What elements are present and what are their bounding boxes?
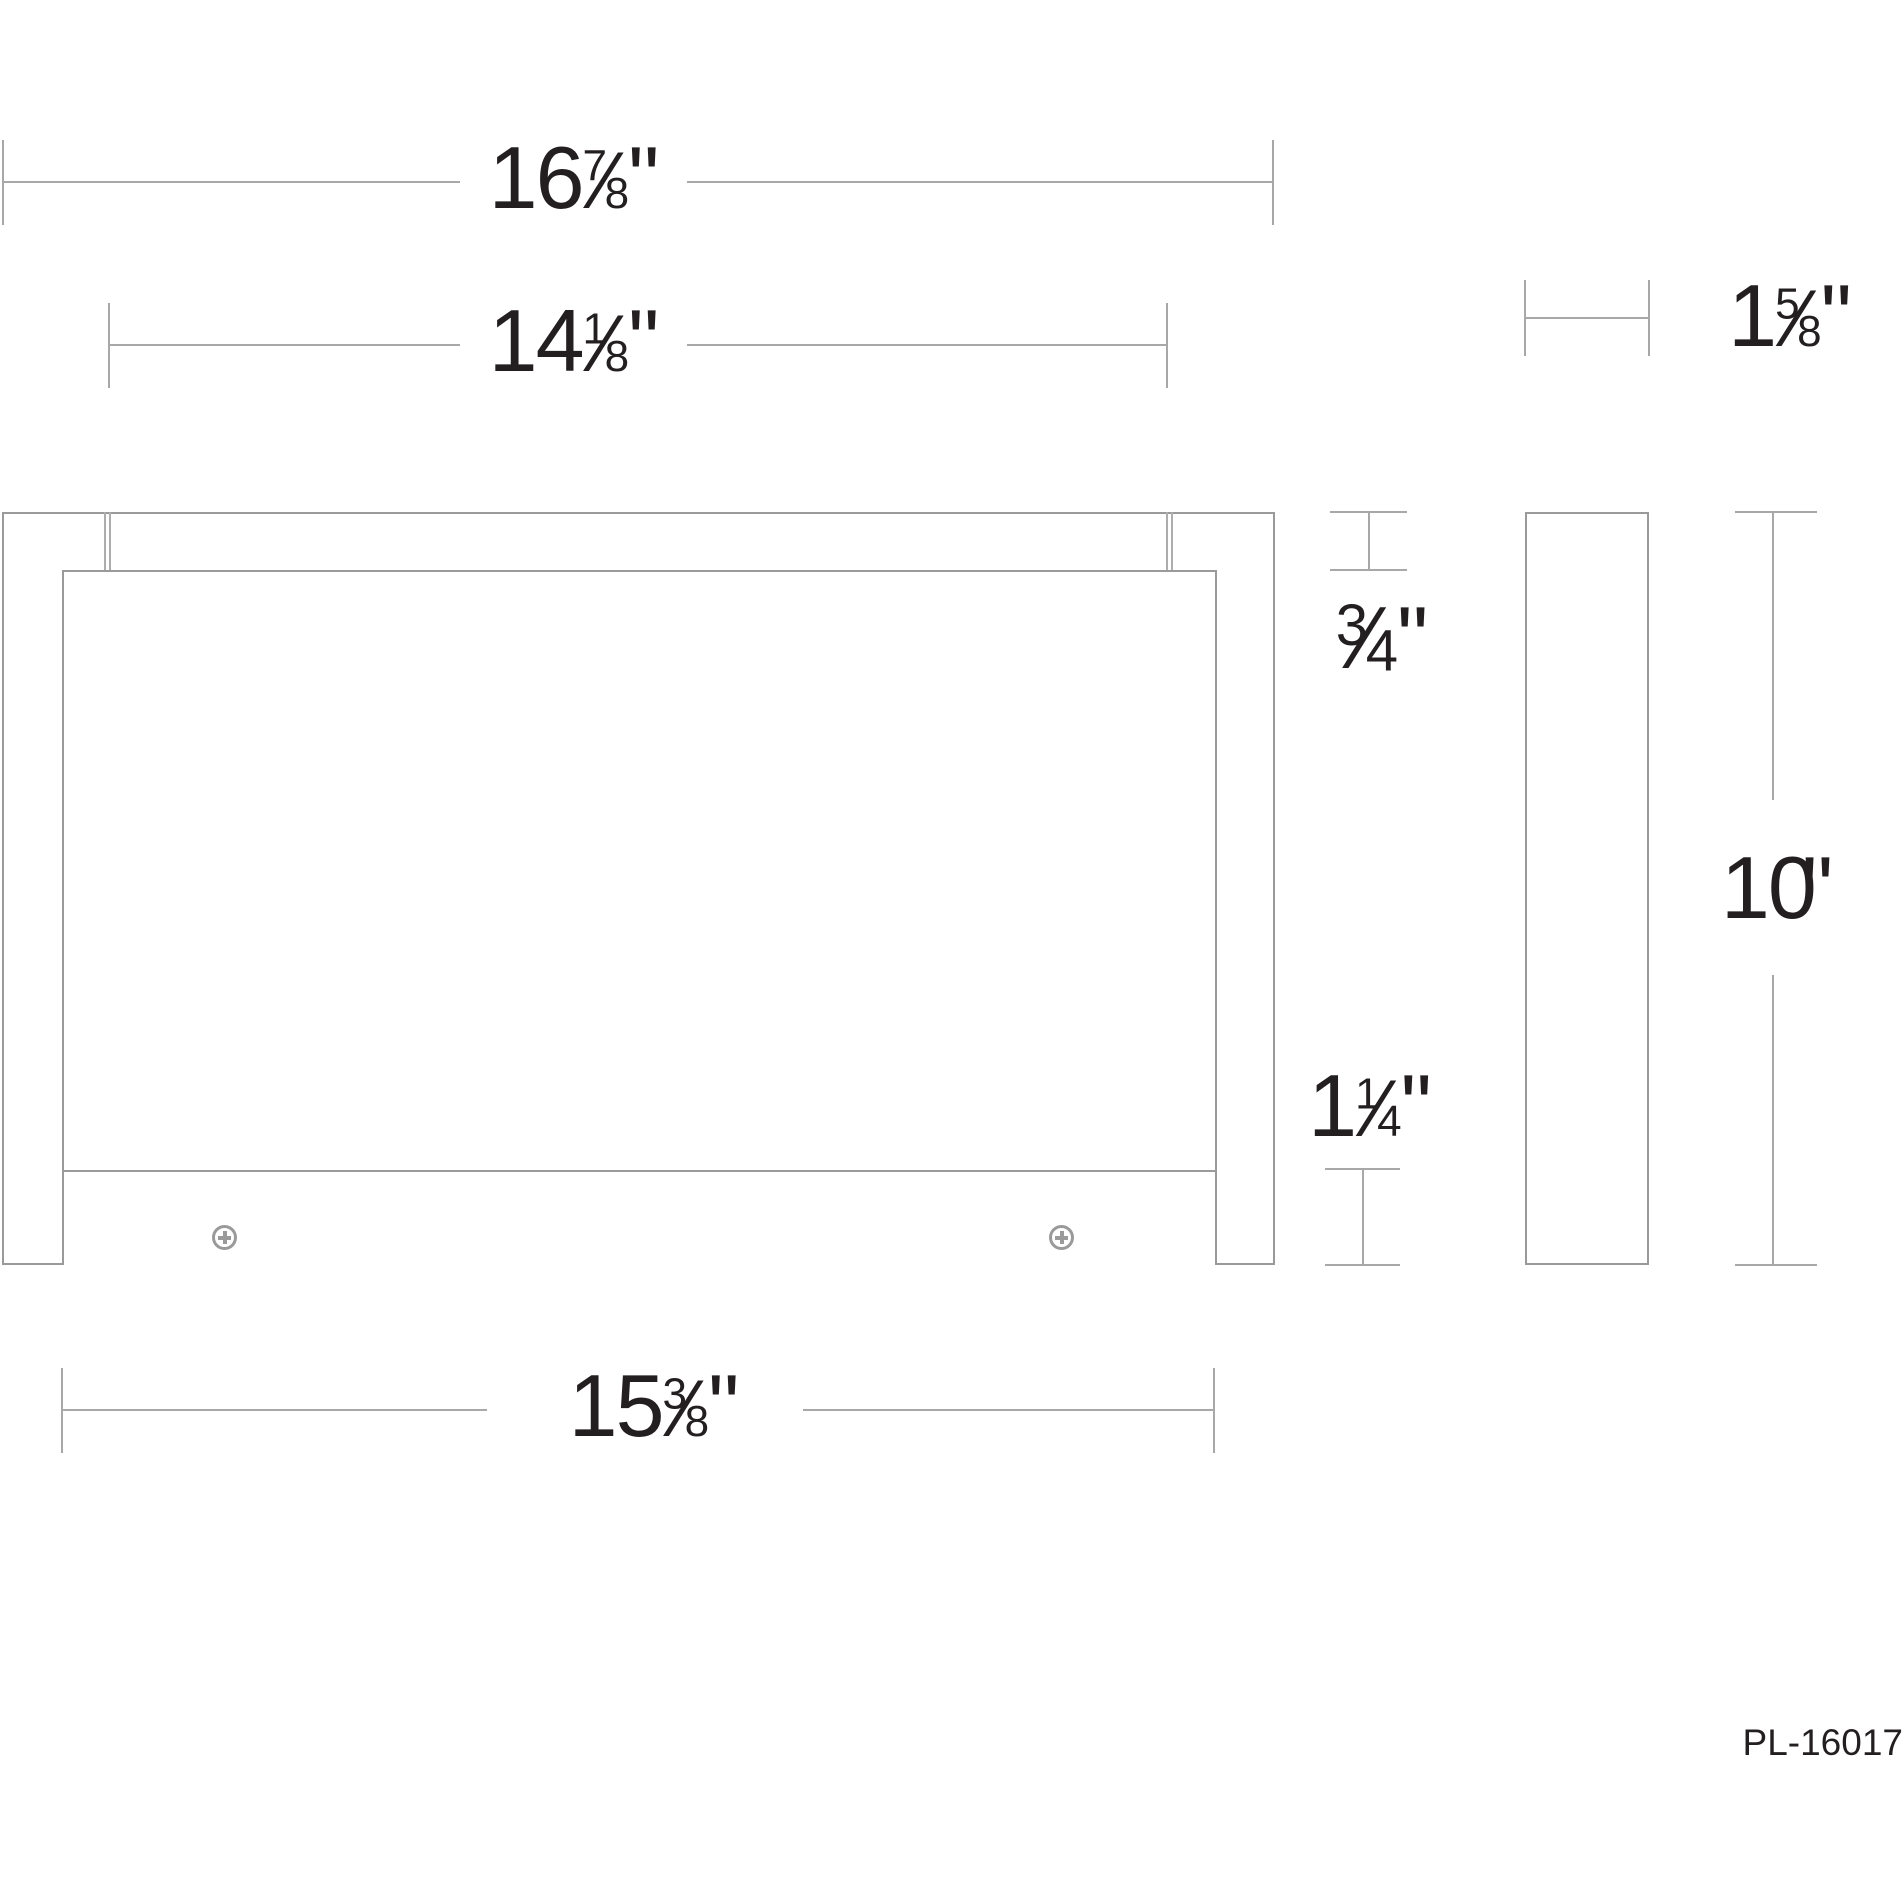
dim-label-bottom-bar-height: 11⁄4" <box>1308 1062 1430 1150</box>
dim-line <box>803 1409 1215 1411</box>
rail-seam-right <box>1171 512 1173 570</box>
dim-line <box>1772 975 1774 1265</box>
rail-seam-left <box>104 512 106 570</box>
dim-label-overall-width: 167⁄8" <box>489 134 658 222</box>
side-outline <box>1525 512 1649 1265</box>
dim-tick <box>1213 1368 1215 1453</box>
dim-label-rail-width: 141⁄8" <box>489 297 658 385</box>
screw-cross-icon <box>1060 1231 1064 1244</box>
rail-seam-left <box>109 512 111 570</box>
dim-line <box>1525 317 1649 319</box>
dim-line <box>1368 511 1370 570</box>
dim-line <box>687 344 1167 346</box>
dim-tick <box>1272 140 1274 225</box>
dim-line <box>1772 512 1774 800</box>
dim-tick <box>1166 303 1168 388</box>
dim-line <box>109 344 460 346</box>
rail-seam-right <box>1166 512 1168 570</box>
screw-icon <box>212 1225 237 1250</box>
dim-line <box>3 181 460 183</box>
dim-label-depth: 15⁄8" <box>1728 272 1850 360</box>
dim-tick <box>61 1368 63 1453</box>
dim-line <box>687 181 1274 183</box>
part-number: PL-16017 <box>1743 1722 1903 1764</box>
dim-label-overall-height: 10" <box>1721 844 1831 932</box>
dim-label-rail-height: 3⁄4" <box>1336 594 1427 682</box>
screw-cross-icon <box>223 1231 227 1244</box>
dim-label-panel-width: 153⁄8" <box>569 1362 738 1450</box>
dim-tick <box>2 140 4 225</box>
dim-tick <box>108 303 110 388</box>
dim-line <box>62 1409 487 1411</box>
dim-tick <box>1735 511 1817 513</box>
spec-sheet: 167⁄8" 141⁄8" 153⁄8" 3⁄4" 11⁄4" <box>0 0 1904 1904</box>
dim-tick <box>1735 1264 1817 1266</box>
screw-icon <box>1049 1225 1074 1250</box>
bottom-bar-divider <box>62 1170 1215 1172</box>
front-glass-panel <box>62 570 1217 1265</box>
dim-line <box>1362 1168 1364 1265</box>
